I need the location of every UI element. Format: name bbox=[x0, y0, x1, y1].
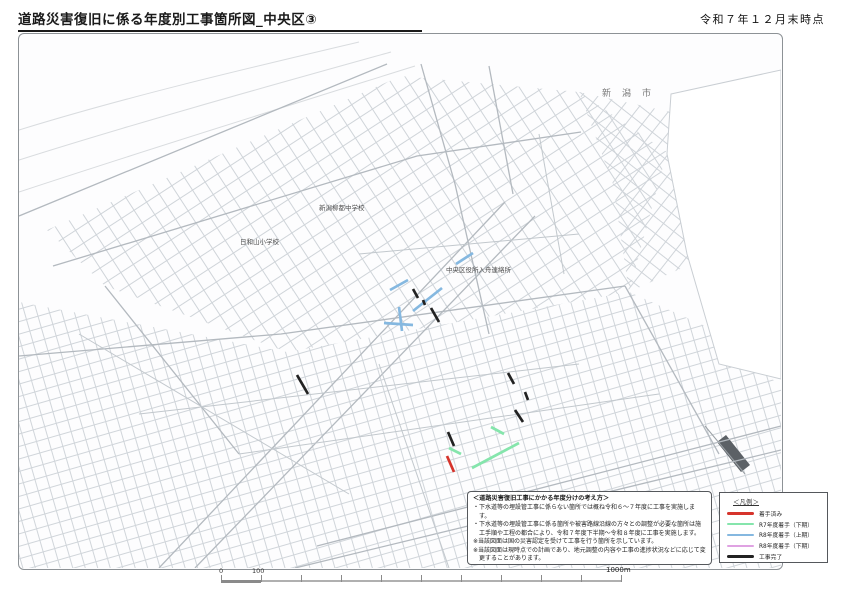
asof-date: 令和７年１２月末時点 bbox=[700, 11, 825, 27]
map-place-label: 中央区役所入舟連絡所 bbox=[446, 265, 512, 274]
legend-label: R8年度着手（上期） bbox=[759, 530, 813, 539]
scale-tick bbox=[381, 575, 382, 582]
scale-label-hundred: 100 bbox=[252, 567, 264, 575]
legend-row-r8_early: R8年度着手（上期） bbox=[727, 530, 823, 541]
scale-tick bbox=[461, 575, 462, 582]
legend-title: ＜凡例＞ bbox=[733, 496, 823, 506]
scale-first-segment bbox=[221, 580, 261, 583]
note-title: ＜道路災害復旧工事にかかる年度分けの考え方＞ bbox=[473, 495, 706, 504]
scale-label-end: 1000m bbox=[606, 566, 631, 574]
page-title: 道路災害復旧に係る年度別工事箇所図_中央区③ bbox=[18, 8, 422, 32]
legend-swatch bbox=[727, 523, 754, 526]
legend-swatch bbox=[727, 545, 754, 548]
legend-label: R7年度着手（下期） bbox=[759, 520, 813, 529]
map-place-label: 日和山小学校 bbox=[240, 237, 280, 246]
legend-row-started: 着手済み bbox=[727, 508, 823, 519]
map-frame: 新潟柳都中学校日和山小学校中央区役所入舟連絡所新潟市 bbox=[18, 33, 783, 570]
scale-tick bbox=[221, 575, 222, 582]
scale-bar: 0 100 1000m bbox=[221, 567, 631, 585]
legend-row-r8_late: R8年度着手（下期） bbox=[727, 540, 823, 551]
legend-label: 工事完了 bbox=[759, 552, 782, 561]
legend-row-done: 工事完了 bbox=[727, 551, 823, 562]
note-line: ※当該図面は現時点での計画であり、地元調整の内容や工事の進捗状況などに応じて変更… bbox=[473, 547, 706, 564]
base-map: 新潟柳都中学校日和山小学校中央区役所入舟連絡所新潟市 bbox=[19, 34, 781, 568]
scale-label-zero: 0 bbox=[219, 567, 223, 575]
scale-tick bbox=[421, 575, 422, 582]
scale-tick bbox=[581, 575, 582, 582]
note-box: ＜道路災害復旧工事にかかる年度分けの考え方＞ ・下水道等の埋設管工事に係らない箇… bbox=[467, 491, 712, 565]
note-lines: ・下水道等の埋設管工事に係らない箇所では概ね令和６～７年度に工事を実施します。・… bbox=[473, 504, 706, 564]
legend-row-r7_late: R7年度着手（下期） bbox=[727, 519, 823, 530]
map-place-label: 新潟市 bbox=[602, 87, 662, 99]
legend-swatch bbox=[727, 555, 754, 558]
legend-swatch bbox=[727, 534, 754, 537]
scale-tick bbox=[621, 575, 622, 582]
note-line: ・下水道等の埋設管工事に係る箇所や被害路線沿線の方々との調整が必要な箇所は施工手… bbox=[473, 521, 706, 538]
work-segment-done bbox=[423, 300, 425, 305]
map-place-label: 新潟柳都中学校 bbox=[319, 203, 365, 212]
note-line: ・下水道等の埋設管工事に係らない箇所では概ね令和６～７年度に工事を実施します。 bbox=[473, 504, 706, 521]
legend-label: R8年度着手（下期） bbox=[759, 541, 813, 550]
legend-rows: 着手済みR7年度着手（下期）R8年度着手（上期）R8年度着手（下期）工事完了 bbox=[727, 508, 823, 562]
scale-tick bbox=[541, 575, 542, 582]
scale-tick bbox=[341, 575, 342, 582]
scale-tick bbox=[261, 575, 262, 582]
legend-label: 着手済み bbox=[759, 509, 782, 518]
legend-swatch bbox=[727, 512, 754, 515]
legend-box: ＜凡例＞ 着手済みR7年度着手（下期）R8年度着手（上期）R8年度着手（下期）工… bbox=[719, 492, 828, 563]
scale-tick bbox=[301, 575, 302, 582]
scale-tick bbox=[501, 575, 502, 582]
note-line: ※当該図面は国の災害認定を受けて工事を行う箇所を示しています。 bbox=[473, 538, 706, 547]
